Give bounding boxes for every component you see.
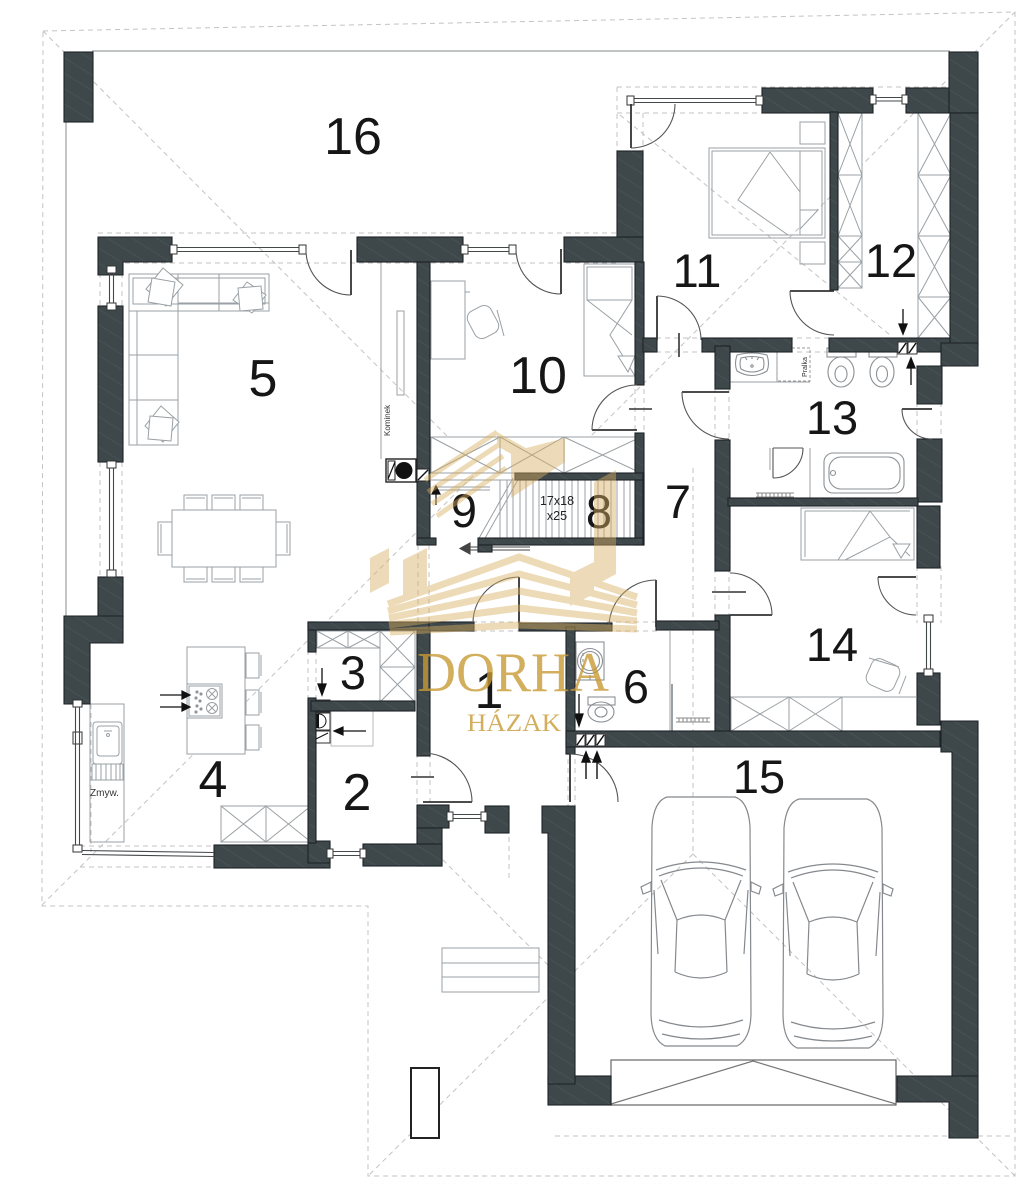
- svg-text:2: 2: [343, 764, 372, 822]
- svg-text:7: 7: [665, 475, 691, 528]
- svg-text:15: 15: [733, 750, 785, 803]
- svg-text:13: 13: [806, 391, 858, 444]
- svg-text:6: 6: [623, 660, 649, 713]
- svg-text:3: 3: [340, 646, 366, 699]
- svg-text:x25: x25: [547, 509, 567, 523]
- svg-text:Zmyw.: Zmyw.: [90, 788, 119, 799]
- svg-text:16: 16: [324, 108, 382, 166]
- svg-text:Kominek: Kominek: [383, 404, 392, 436]
- svg-text:17x18: 17x18: [540, 494, 574, 508]
- svg-text:12: 12: [865, 234, 917, 287]
- svg-text:11: 11: [673, 244, 722, 297]
- svg-text:10: 10: [509, 347, 567, 405]
- svg-text:HÁZAK: HÁZAK: [467, 709, 561, 737]
- svg-text:5: 5: [249, 350, 278, 408]
- svg-text:14: 14: [806, 618, 858, 671]
- svg-text:Pralka: Pralka: [802, 357, 809, 377]
- svg-text:4: 4: [199, 751, 228, 809]
- svg-text:DORHA: DORHA: [417, 642, 610, 704]
